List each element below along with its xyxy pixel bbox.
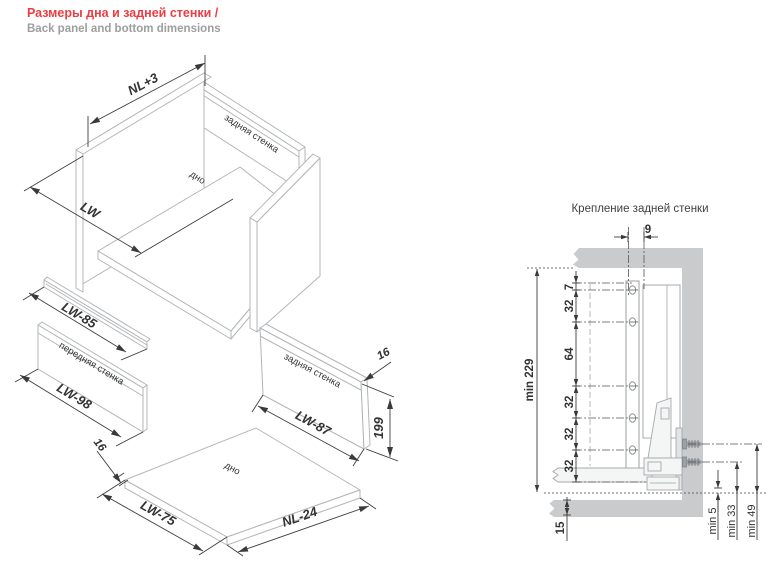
dim-64-label: 64: [564, 347, 576, 360]
dim-32-label: 32: [564, 396, 576, 409]
dim-16-back: 16: [364, 346, 393, 381]
catalog-page: Размеры дна и задней стенки / Back panel…: [0, 0, 779, 562]
dim-nl3-label: NL+3: [125, 69, 161, 98]
dim-min33-label: min 33: [726, 504, 738, 537]
exploded-view: задняя стенка дно NL+3 LW: [15, 55, 398, 556]
dim-min229-label: min 229: [524, 359, 536, 402]
dim-32-label: 32: [564, 428, 576, 441]
section-title: Крепление задней стенки: [571, 203, 708, 215]
dim-stack: 7 32 64 32 32 32: [564, 271, 580, 482]
dim-16-bottom: 16: [91, 436, 128, 486]
front-panel-piece: передняя стенка LW-98: [15, 322, 147, 446]
dim-16-back-label: 16: [375, 346, 392, 363]
dim-32-label: 32: [564, 460, 576, 473]
drawing-canvas: задняя стенка дно NL+3 LW: [0, 0, 779, 562]
dim-min5: min 5: [707, 470, 722, 540]
dim-9: 9: [614, 224, 658, 242]
dim-9-label: 9: [645, 224, 651, 236]
fixing-hole-strip: [626, 281, 639, 479]
section-view: Крепление задней стенки: [524, 203, 767, 541]
back-panel-board: [682, 248, 703, 507]
dim-16-bottom-label: 16: [91, 436, 109, 454]
dim-15-label: 15: [555, 521, 567, 534]
dim-min5-label: min 5: [707, 508, 719, 535]
dim-199-label: 199: [371, 416, 386, 438]
dim-32-label: 32: [564, 300, 576, 313]
dim-min49: min 49: [746, 444, 758, 540]
dim-7-label: 7: [564, 284, 576, 290]
dim-min49-label: min 49: [746, 504, 758, 537]
cabinet-bottom-panel: [549, 500, 703, 517]
dim-min33: min 33: [726, 462, 738, 540]
